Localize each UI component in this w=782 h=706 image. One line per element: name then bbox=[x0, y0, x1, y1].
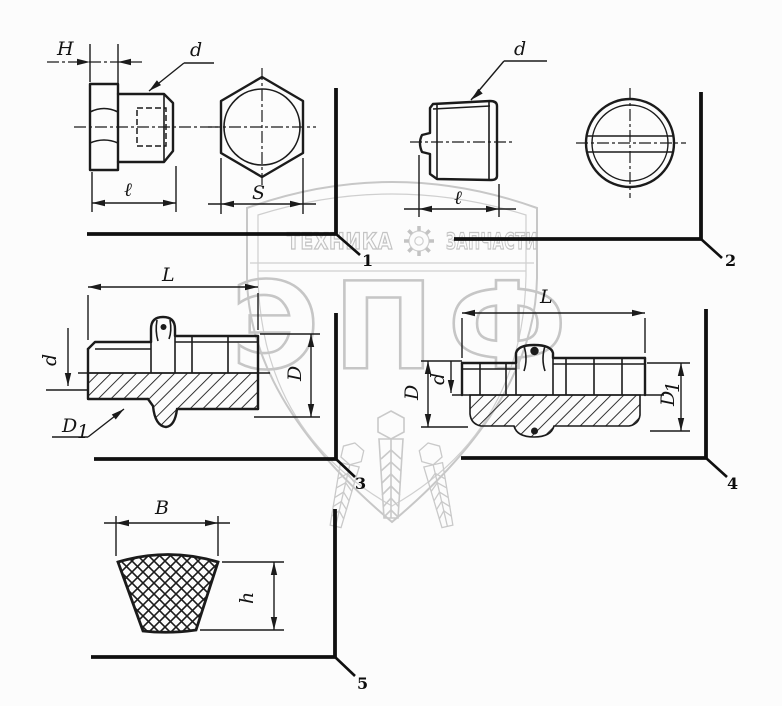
union-side-view bbox=[452, 345, 664, 437]
hex-plug-side-view bbox=[74, 84, 218, 170]
figure-3-callout: 3 bbox=[355, 474, 366, 493]
dim-label-width: В bbox=[154, 497, 169, 519]
dim-label-head-height: Н bbox=[56, 38, 74, 60]
dim-label-across-flats: S bbox=[252, 182, 265, 204]
figure-1-callout: 1 bbox=[362, 251, 373, 270]
dim-label-thread-diameter: d bbox=[39, 354, 61, 366]
dim-label-length: ℓ bbox=[454, 187, 462, 209]
figure-3-fitting: L d D D 1 3 bbox=[39, 264, 366, 493]
belt-section-shape bbox=[118, 555, 218, 633]
hex-plug-front-view bbox=[208, 68, 316, 186]
dim-label-length: ℓ bbox=[124, 179, 132, 201]
figure-5-belt-section: В h 5 bbox=[91, 497, 368, 693]
dim-label-flange-subscript: 1 bbox=[77, 421, 89, 443]
technical-drawings: Н d ℓ S 1 bbox=[0, 0, 782, 706]
figure-1-hex-plug: Н d ℓ S 1 bbox=[47, 38, 373, 270]
dim-label-flange-diameter: D bbox=[61, 415, 77, 437]
fitting-side-view bbox=[78, 317, 270, 427]
figure-5-callout: 5 bbox=[357, 674, 368, 693]
dim-label-outer-diameter: D bbox=[401, 385, 423, 401]
figure-2-slotted-plug: d ℓ 2 bbox=[404, 38, 736, 270]
slotted-plug-side-view bbox=[410, 101, 512, 180]
figure-4-union-fitting: L D d D 1 4 bbox=[401, 286, 738, 493]
dim-label-diameter: d bbox=[190, 39, 202, 61]
slotted-plug-front-view bbox=[576, 88, 686, 198]
scanned-drawing-page: ТЕХНИКА ЗАПЧАСТИ ЭПФ bbox=[0, 0, 782, 706]
dim-label-length: L bbox=[161, 264, 175, 286]
dim-label-diameter: d bbox=[514, 38, 526, 60]
dim-label-thread-diameter: d bbox=[427, 373, 449, 385]
dim-label-flange-subscript: 1 bbox=[662, 381, 684, 393]
figure-4-callout: 4 bbox=[727, 474, 738, 493]
dim-label-flange-diameter-group: D 1 bbox=[657, 381, 684, 407]
dim-label-outer-diameter: D bbox=[284, 366, 306, 382]
figure-2-callout: 2 bbox=[725, 251, 736, 270]
dim-label-height: h bbox=[236, 592, 258, 604]
dim-label-length: L bbox=[539, 286, 553, 308]
